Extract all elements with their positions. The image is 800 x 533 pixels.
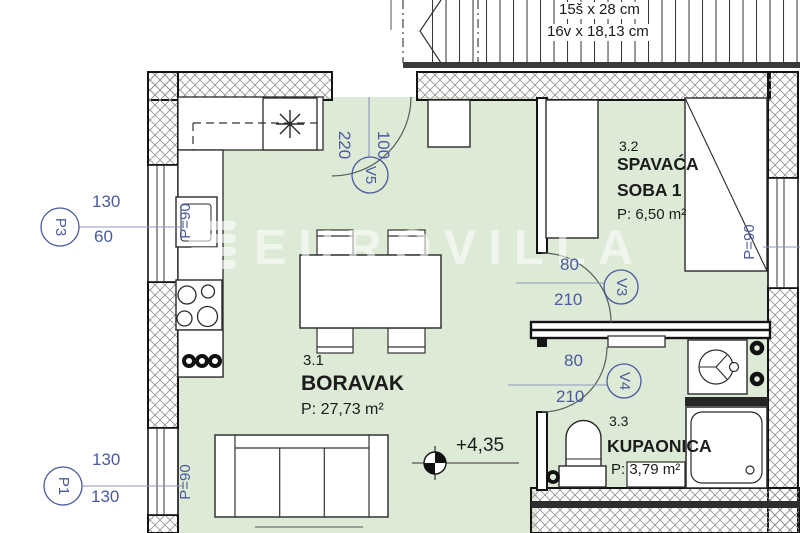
p1-dim-top: 130 [92,451,120,470]
elevation-value: +4,35 [456,436,504,457]
watermark-text: EUROVILLA [254,221,645,275]
marker-p1-label: P1 [53,456,73,516]
v5-dim-width: 100 [373,115,393,175]
p3-dim-top: 130 [92,193,120,212]
v3-dim-width: 80 [560,256,579,275]
window-p3 [148,165,178,282]
window-p1 [148,428,178,515]
floor-plan: EUROVILLA 15š x 28 cm 16v x 18,13 cm 3.1… [0,0,800,533]
wardrobe [546,100,598,238]
bathroom-name: KUPAONICA [607,437,712,456]
bedroom-window-parapet: P=90 [740,212,760,272]
bedroom-name-line2: SOBA 1 [617,181,682,200]
sofa [215,435,388,527]
living-room-number: 3.1 [303,353,324,370]
bedroom-area: P: 6,50 m² [617,207,686,224]
p1-parapet: P=90 [176,452,196,512]
v4-dim-width: 80 [564,352,583,371]
marker-p3-label: P3 [50,197,70,257]
living-room-name: BORAVAK [301,372,404,395]
stairs-dimension-2: 16v x 18,13 cm [544,24,652,41]
v5-dim-height: 220 [334,115,354,175]
fridge [428,100,470,147]
marker-v3-label: V3 [611,257,631,317]
living-room-area: P: 27,73 m² [301,401,384,419]
marker-v4-label: V4 [614,351,634,411]
bathroom-area: P: 3,79 m² [611,462,680,479]
bedroom-number: 3.2 [619,139,638,154]
bathroom-number: 3.3 [609,414,628,429]
v4-dim-height: 210 [556,388,584,407]
toilet [566,421,601,468]
sink-symbol-icon [276,110,304,138]
bedroom-name-line1: SPAVAĆA [617,155,699,174]
v3-dim-height: 210 [554,291,582,310]
p3-parapet: P=90 [176,191,196,251]
stairs-dimension-1: 15š x 28 cm [556,2,643,19]
kitchen-unit [178,330,223,377]
p3-dim-bottom: 60 [94,228,113,247]
window-bedroom [768,178,798,288]
p1-dim-bottom: 130 [91,488,119,507]
